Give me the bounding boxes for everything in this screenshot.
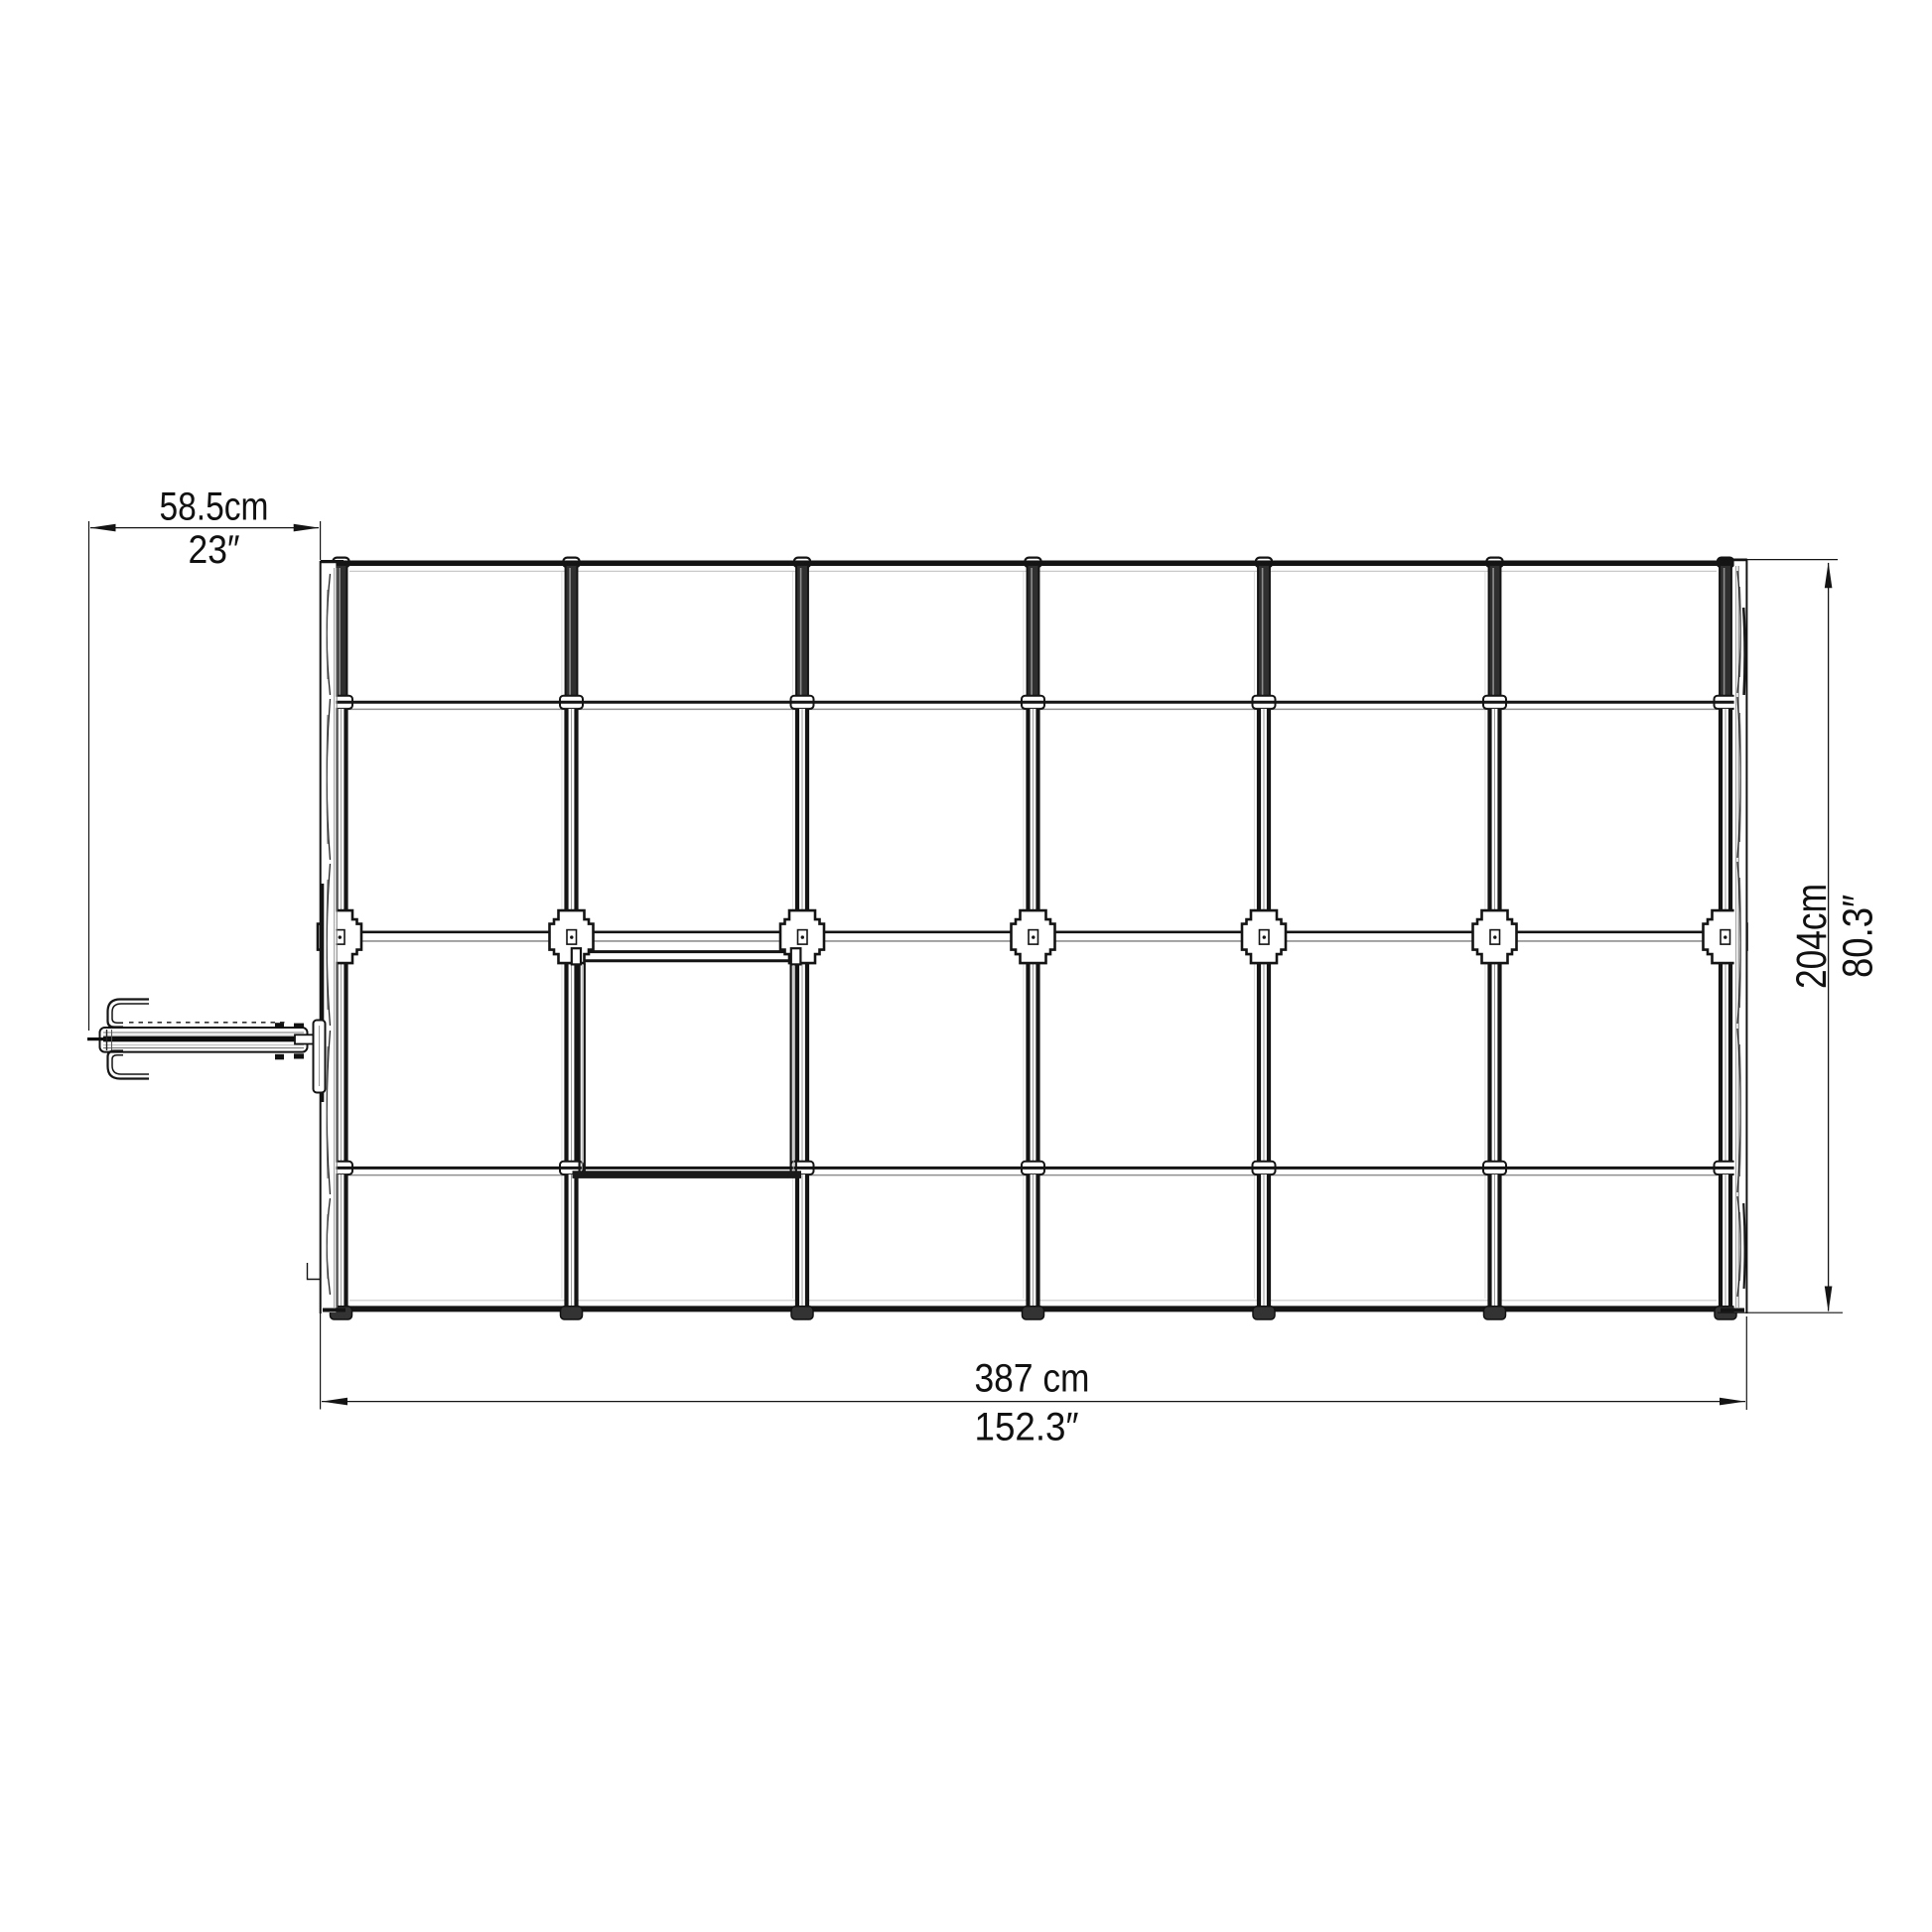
svg-text:23″: 23″: [189, 528, 240, 572]
svg-text:58.5cm: 58.5cm: [160, 485, 269, 529]
svg-text:80.3″: 80.3″: [1836, 895, 1882, 978]
svg-text:387 cm: 387 cm: [975, 1357, 1090, 1401]
svg-text:204cm: 204cm: [1789, 884, 1836, 989]
svg-text:152.3″: 152.3″: [975, 1406, 1079, 1449]
